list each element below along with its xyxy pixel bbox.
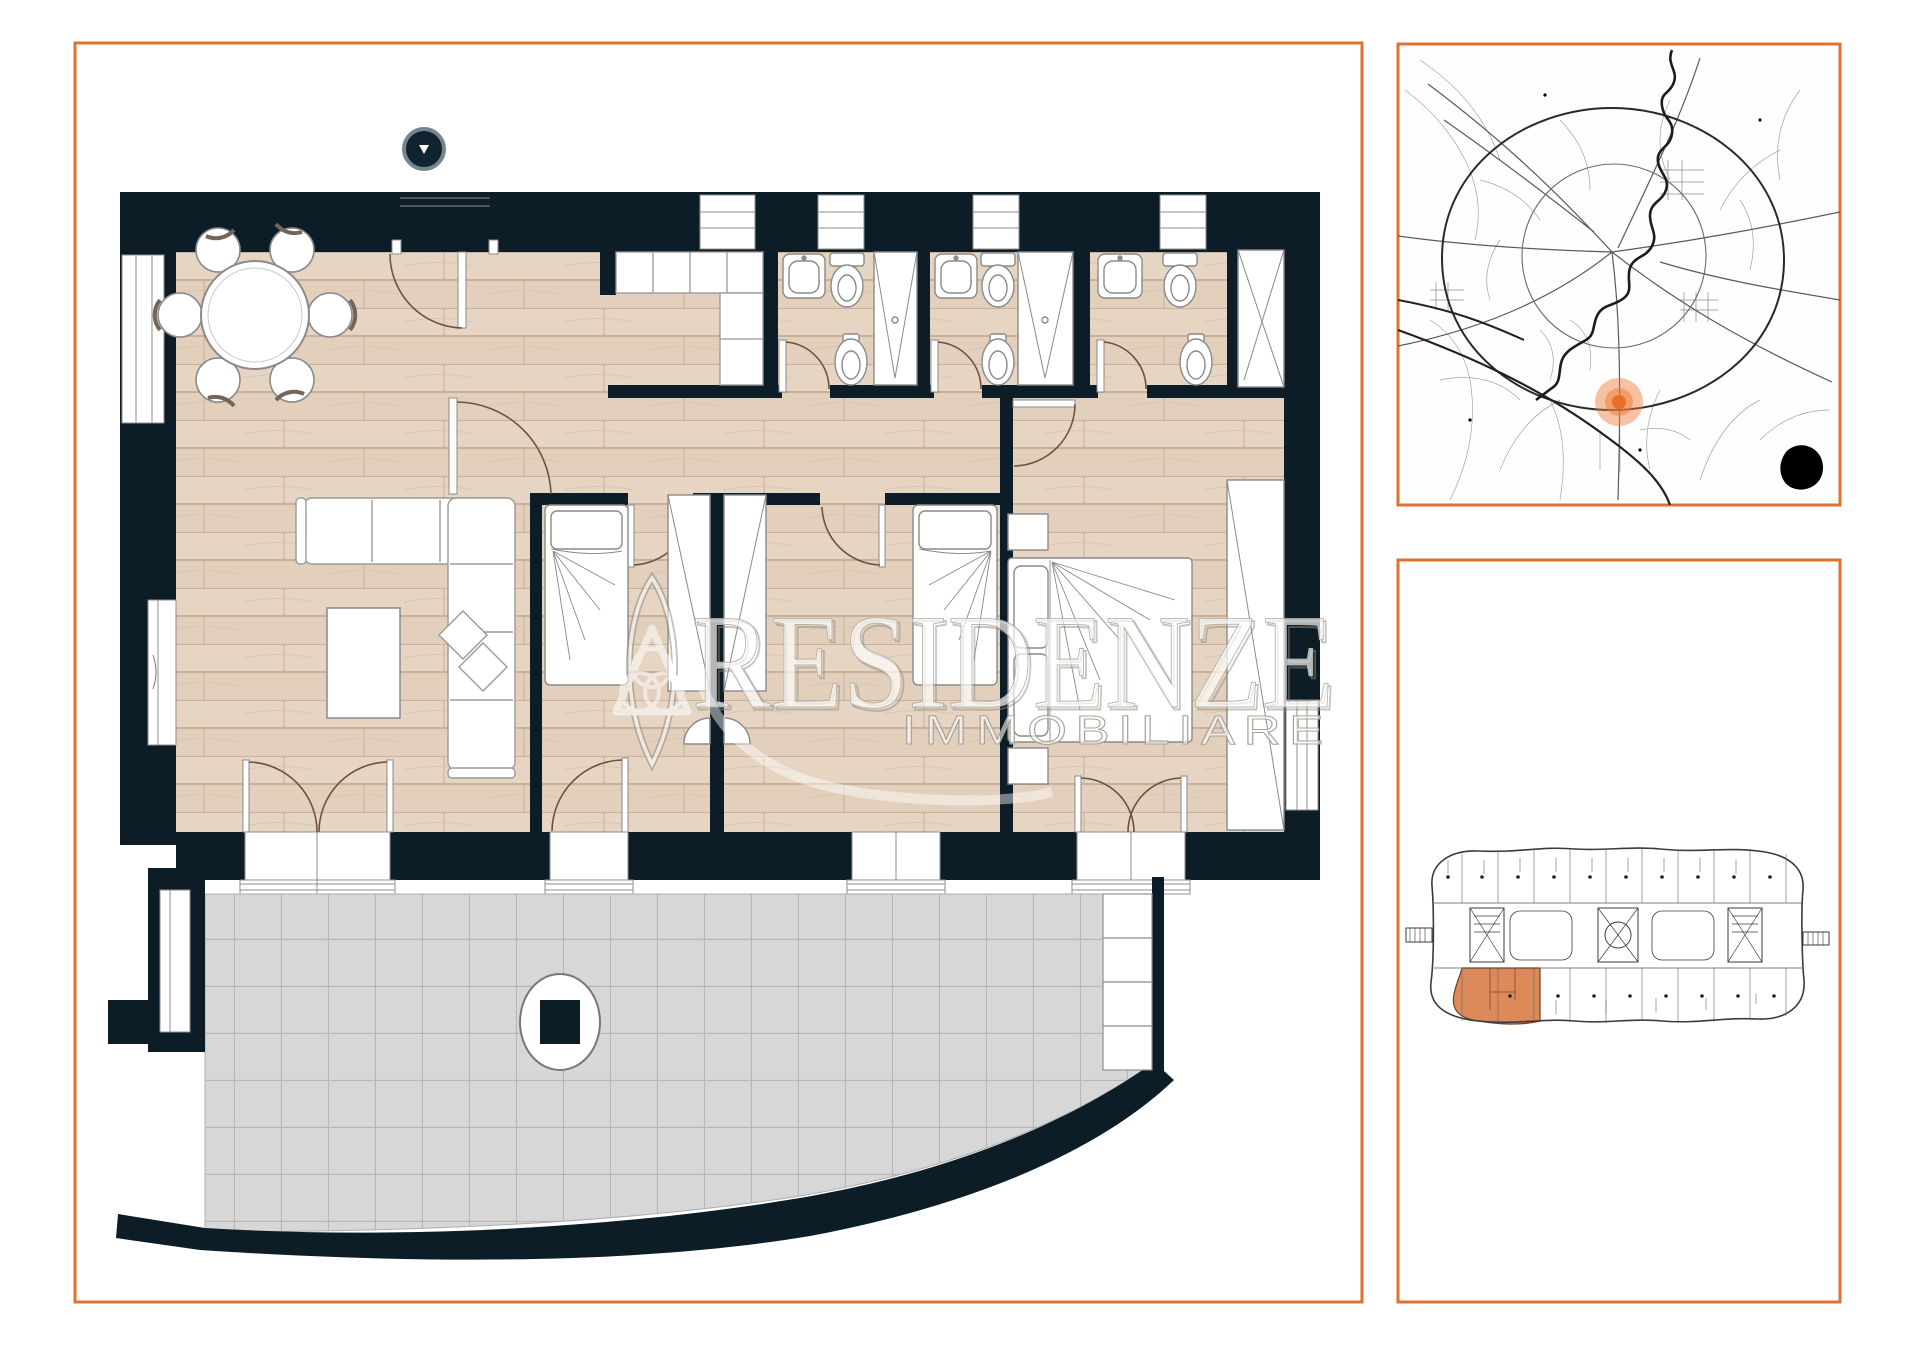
sliding-door-left	[148, 600, 176, 745]
french-door-master-terrace	[1072, 832, 1190, 894]
planter-shelf	[1103, 894, 1152, 1070]
window-kitchen	[700, 195, 755, 249]
spyhole-icon	[404, 129, 444, 169]
floor-plan-panel: RESIDENZE RESIDENZE IMMOBILIARE	[75, 43, 1362, 1302]
window-bath2	[973, 195, 1019, 249]
location-marker-icon	[1595, 378, 1643, 426]
wall-bath2-bath3	[1073, 252, 1090, 398]
sheet-canvas: RESIDENZE RESIDENZE IMMOBILIARE	[0, 0, 1920, 1358]
terrace-right-wall	[1103, 877, 1164, 1077]
door-bedroom1-terrace	[545, 832, 633, 894]
location-map-panel	[1398, 44, 1840, 505]
wall-living-bedroom1	[530, 493, 542, 832]
wall-kitchen-bath1	[763, 252, 778, 398]
window-bath3	[1160, 195, 1206, 249]
shower-icon	[1018, 252, 1073, 385]
single-bed	[545, 505, 628, 685]
watermark-line2: IMMOBILIARE	[902, 707, 1332, 753]
map-lake	[1780, 445, 1823, 489]
floor-plan-sheet: RESIDENZE RESIDENZE IMMOBILIARE	[0, 0, 1920, 1358]
window-bath1	[818, 195, 864, 249]
coffee-table	[327, 608, 400, 718]
sink-icon	[1098, 254, 1142, 298]
toilet-icon	[830, 253, 864, 307]
sink-icon	[783, 254, 825, 298]
wall-corridor-bottom-c	[885, 493, 1013, 505]
toilet-icon	[1163, 253, 1197, 307]
watermark-text: RESIDENZE RESIDENZE IMMOBILIARE	[692, 588, 1337, 753]
wardrobe-niche	[1238, 250, 1284, 387]
nightstand	[1008, 748, 1048, 784]
building-key-plan-panel	[1398, 560, 1840, 1302]
wall-corridor-top-b	[830, 385, 934, 398]
dining-table	[201, 261, 309, 369]
terrace-table	[520, 974, 600, 1070]
nightstand	[1008, 514, 1048, 550]
highlighted-unit	[1453, 968, 1540, 1024]
wall-bath1-bath2	[917, 252, 930, 398]
toilet-icon	[981, 253, 1015, 307]
wall-bath3-closet	[1227, 252, 1238, 398]
window-living-left	[122, 255, 164, 423]
wall-kitchen-stub	[600, 252, 616, 295]
window-bedroom2-terrace	[847, 832, 945, 894]
french-door-living	[240, 832, 395, 894]
wall-corridor-top-c	[982, 385, 1098, 398]
wall-corridor-top-d	[1147, 385, 1320, 398]
wall-corridor-top-a	[608, 385, 782, 398]
sink-icon	[935, 254, 977, 298]
shower-icon	[874, 252, 917, 385]
wall-corridor-bottom-a	[530, 493, 628, 505]
